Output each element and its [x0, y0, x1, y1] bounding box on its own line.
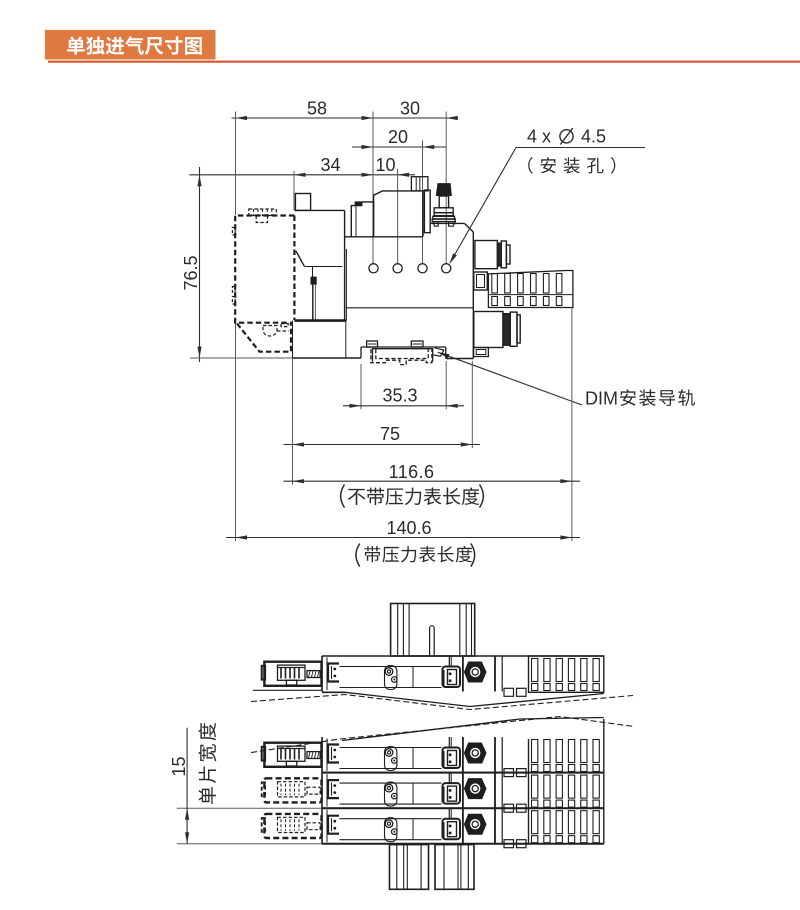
svg-text:35.3: 35.3: [382, 386, 417, 406]
svg-text:20: 20: [388, 127, 408, 147]
svg-text:140.6: 140.6: [386, 518, 431, 538]
svg-text:58: 58: [307, 99, 327, 119]
svg-text:4.5: 4.5: [581, 126, 606, 146]
svg-text:75: 75: [380, 424, 400, 444]
svg-text:116.6: 116.6: [389, 462, 435, 482]
svg-text:34: 34: [320, 155, 340, 175]
svg-text:76.5: 76.5: [181, 255, 201, 290]
svg-text:4 x: 4 x: [527, 126, 551, 146]
svg-text:10: 10: [375, 155, 395, 175]
svg-text:DIM: DIM: [585, 389, 618, 409]
svg-text:30: 30: [400, 99, 420, 119]
svg-text:15: 15: [169, 756, 189, 776]
